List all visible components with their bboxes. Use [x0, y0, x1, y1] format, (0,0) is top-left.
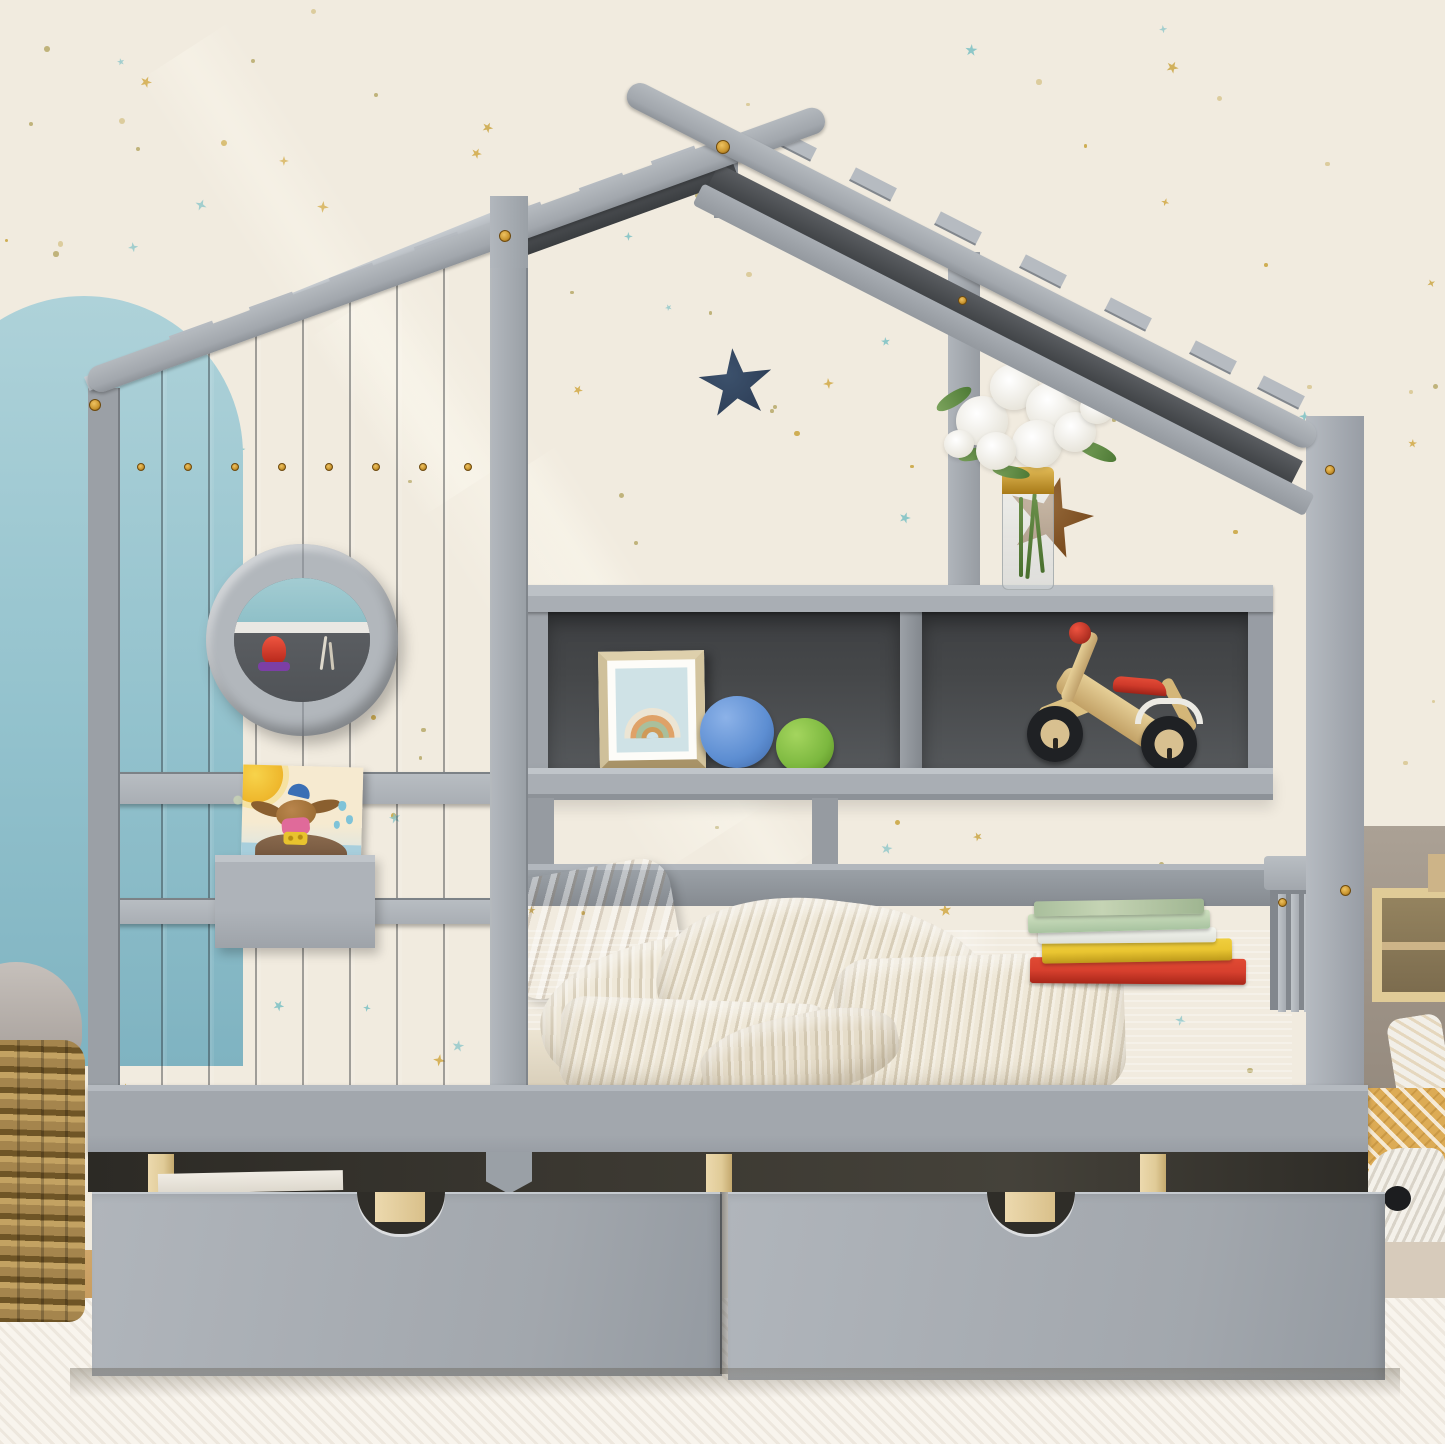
gold-screw	[137, 463, 145, 471]
bed-support-slat	[1140, 1154, 1166, 1192]
drawer-handle-notch	[987, 1192, 1075, 1234]
gold-screw	[464, 463, 472, 471]
gold-screw	[184, 463, 192, 471]
gold-screw	[372, 463, 380, 471]
bed-front-rail	[88, 1085, 1368, 1152]
gold-screw	[89, 399, 101, 411]
gold-screw	[716, 140, 730, 154]
gold-screw	[499, 230, 511, 242]
storage-drawer-right	[728, 1192, 1385, 1380]
drawer-seam	[720, 1192, 728, 1374]
gold-screw	[1340, 885, 1351, 896]
gold-screw	[278, 463, 286, 471]
bed-support-slat	[706, 1154, 732, 1192]
gold-screw	[1325, 465, 1335, 475]
gold-screw	[958, 296, 967, 305]
product-photo-kids-house-bed	[0, 0, 1445, 1444]
gold-screw	[231, 463, 239, 471]
bed-slat-board	[158, 1170, 343, 1194]
gold-screw	[1278, 898, 1287, 907]
floor-shadow	[70, 1368, 1400, 1398]
gold-screw	[419, 463, 427, 471]
storage-drawer-left	[92, 1192, 722, 1376]
drawer-handle-notch	[357, 1192, 445, 1234]
gold-screw	[325, 463, 333, 471]
